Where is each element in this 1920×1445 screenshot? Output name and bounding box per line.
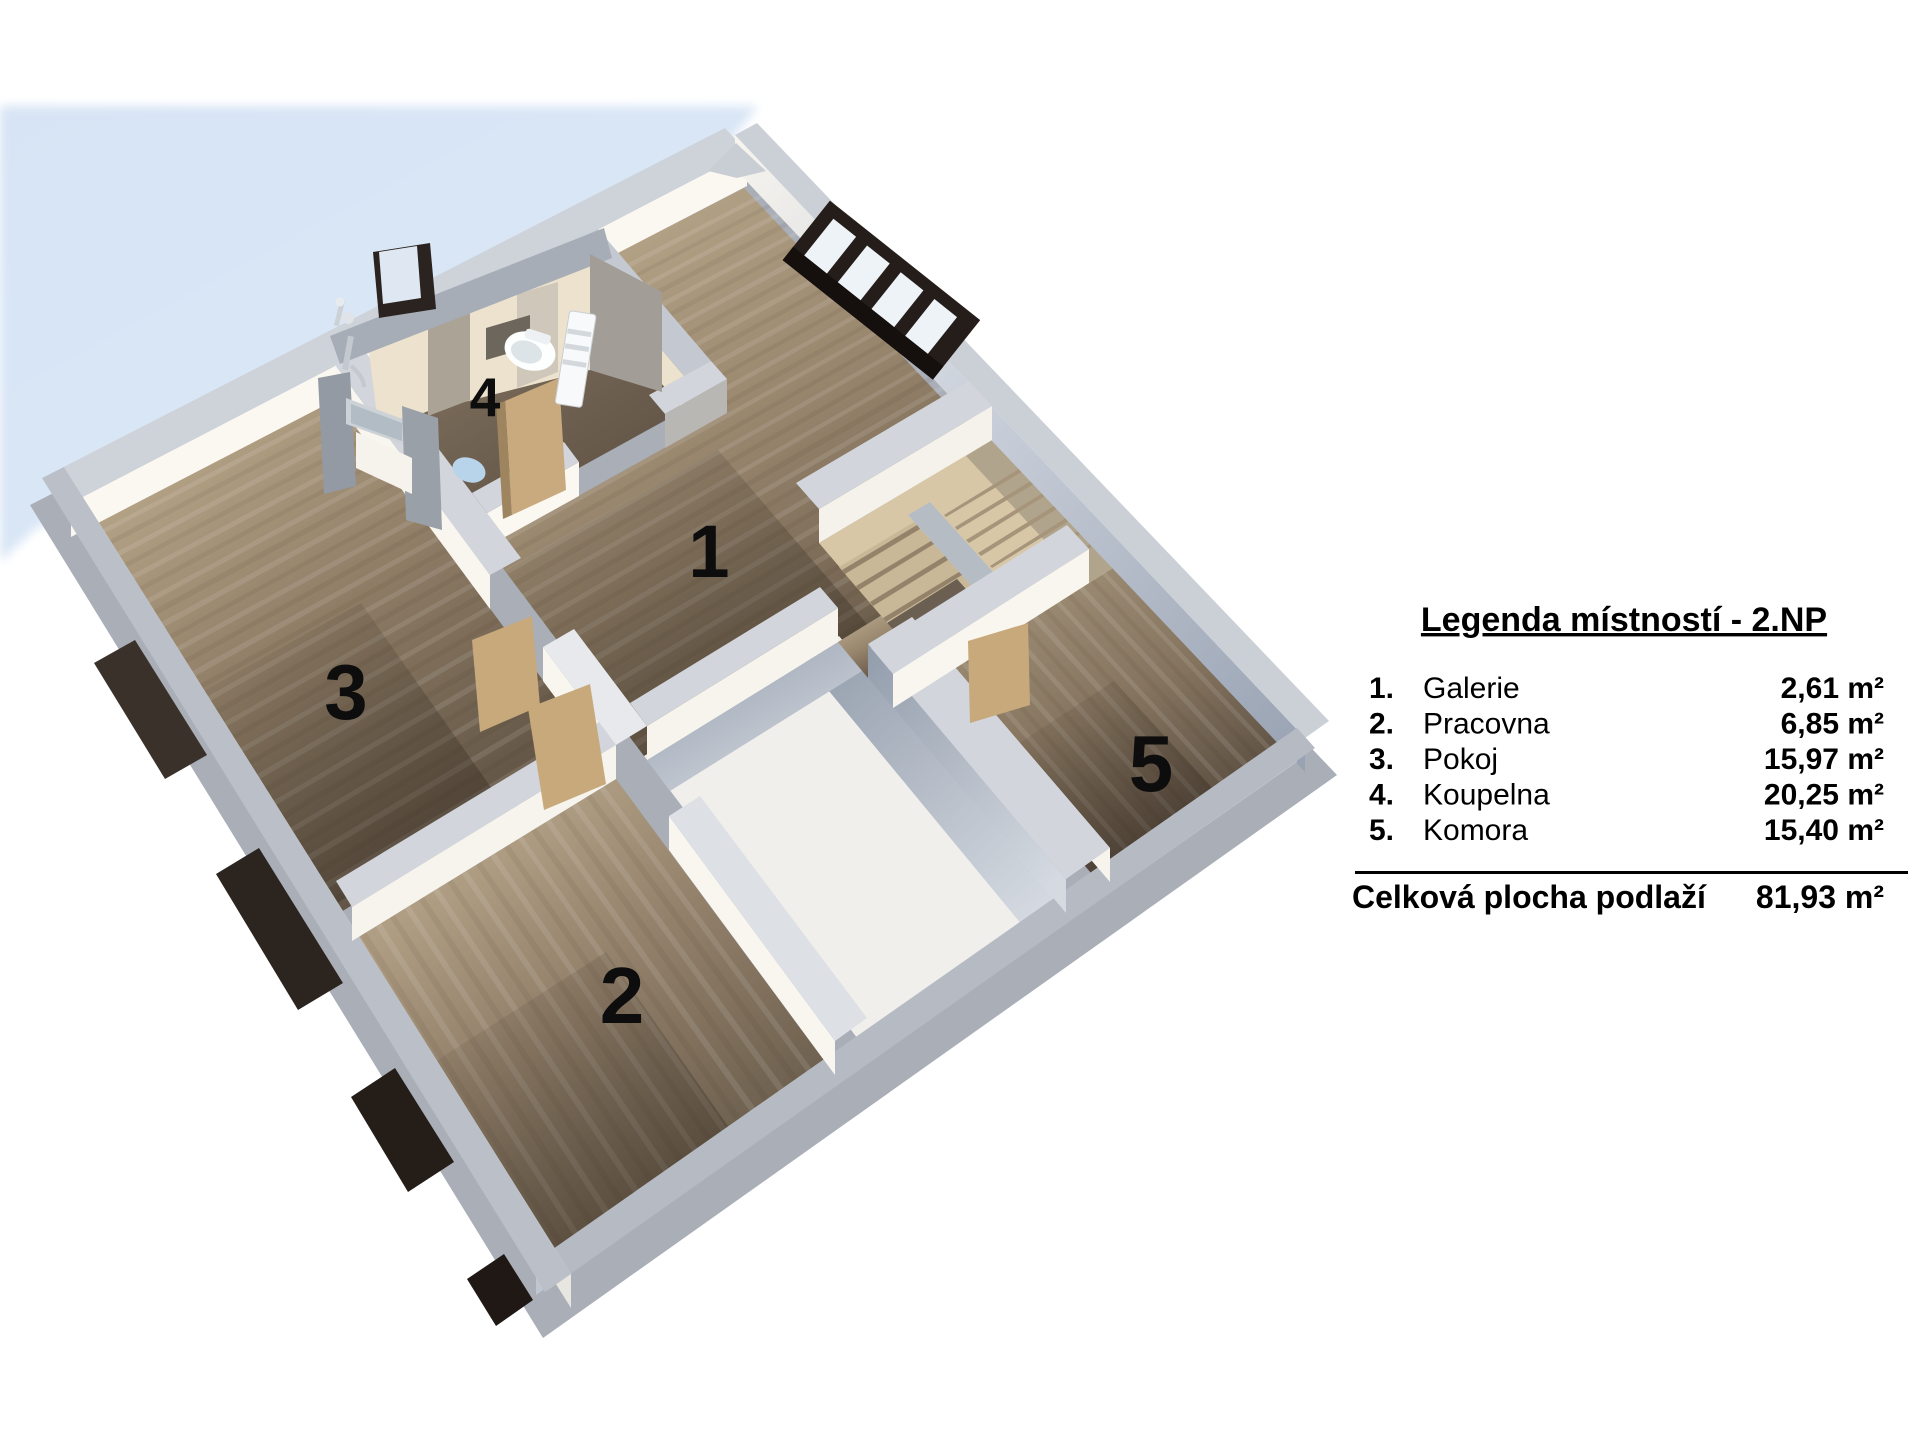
svg-text:Pokoj: Pokoj [1423,743,1498,776]
svg-text:3.: 3. [1369,743,1394,776]
svg-text:2: 2 [600,951,645,1040]
svg-text:Legenda místností - 2.NP: Legenda místností - 2.NP [1421,601,1827,639]
svg-text:2,61 m²: 2,61 m² [1781,672,1884,705]
svg-text:5: 5 [1129,719,1174,808]
svg-text:15,97 m²: 15,97 m² [1764,743,1884,776]
svg-text:1: 1 [688,510,729,593]
svg-text:4: 4 [470,366,501,428]
svg-text:20,25 m²: 20,25 m² [1764,779,1884,812]
svg-text:6,85 m²: 6,85 m² [1781,708,1884,741]
svg-text:1.: 1. [1369,672,1394,705]
svg-text:3: 3 [324,648,367,736]
svg-text:81,93 m²: 81,93 m² [1756,879,1884,915]
svg-text:Koupelna: Koupelna [1423,779,1550,812]
svg-text:Galerie: Galerie [1423,672,1520,705]
svg-text:5.: 5. [1369,814,1394,847]
svg-text:Komora: Komora [1423,814,1528,847]
svg-text:4.: 4. [1369,779,1394,812]
svg-text:15,40 m²: 15,40 m² [1764,814,1884,847]
svg-text:2.: 2. [1369,708,1394,741]
svg-text:Celková plocha podlaží: Celková plocha podlaží [1352,879,1707,915]
svg-text:Pracovna: Pracovna [1423,708,1550,741]
